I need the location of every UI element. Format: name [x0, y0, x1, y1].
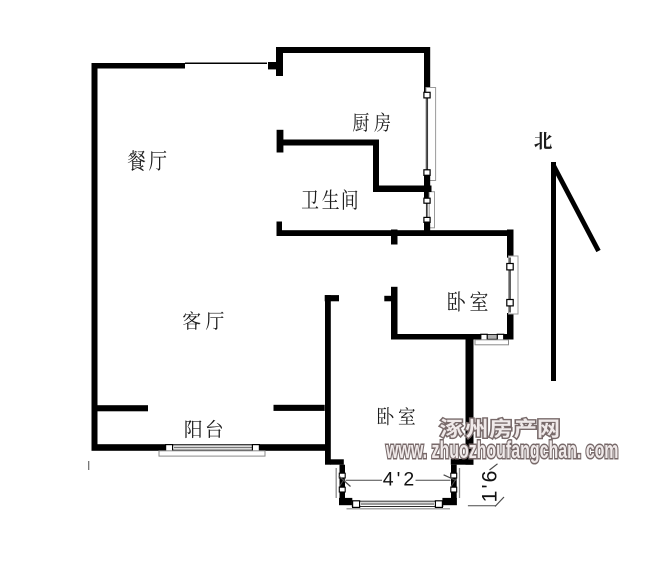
svg-text:www. zhuozhoufangchan. com: www. zhuozhoufangchan. com [385, 437, 618, 464]
svg-text:1'6: 1'6 [478, 468, 502, 502]
svg-text:4'2: 4'2 [383, 469, 417, 491]
